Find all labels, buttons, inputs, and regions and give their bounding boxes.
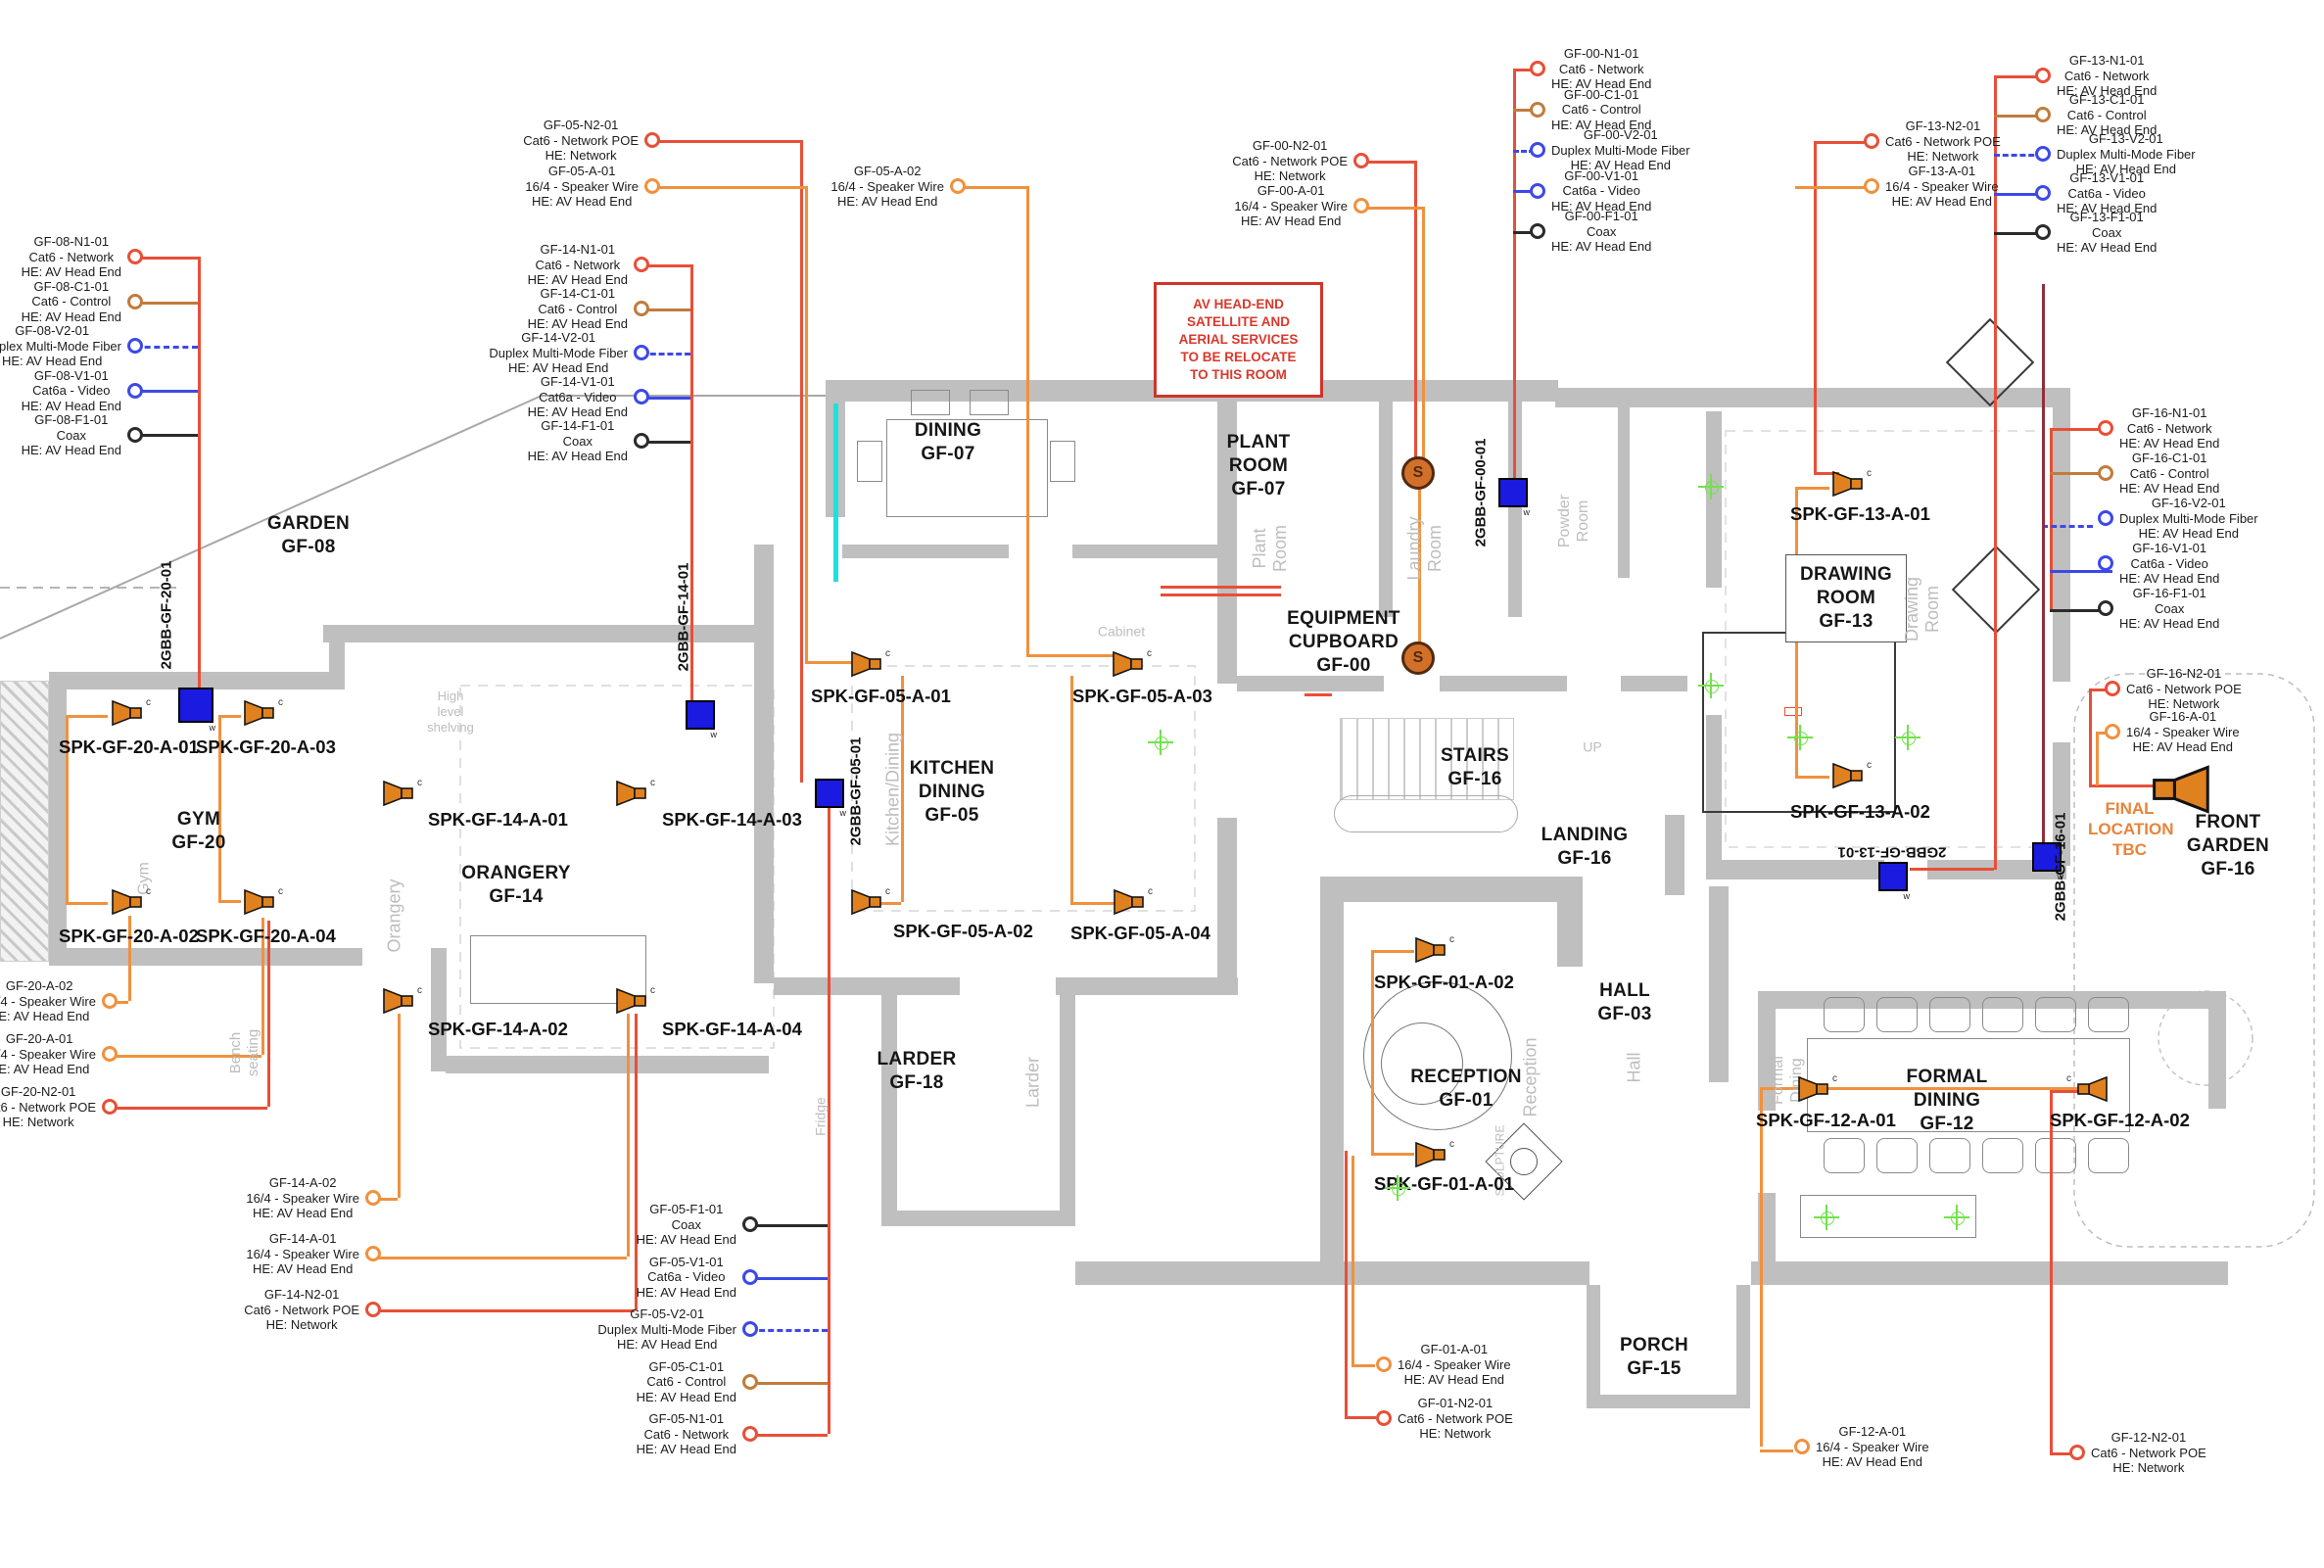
cable-run-blue: [750, 1277, 828, 1280]
cable-terminal-GF-14-A-01: [365, 1246, 381, 1261]
speaker-icon: [1112, 651, 1145, 682]
cable-label-GF-05-V2-01: GF-05-V2-01 Duplex Multi-Mode Fiber HE: …: [597, 1307, 736, 1353]
speaker-c-tag: c: [146, 697, 151, 708]
wall-segment: [1621, 676, 1687, 691]
speaker-c-tag: c: [278, 886, 283, 897]
sofa-outline: [1702, 632, 1896, 813]
cable-label-GF-00-C1-01: GF-00-C1-01 Cat6 - Control HE: AV Head E…: [1551, 87, 1651, 133]
cable-label-GF-13-F1-01: GF-13-F1-01 Coax HE: AV Head End: [2057, 210, 2157, 256]
cable-label-GF-13-N2-01: GF-13-N2-01 Cat6 - Network POE HE: Netwo…: [1885, 119, 2001, 165]
cable-run-orange: [66, 715, 108, 718]
speaker-icon: [1113, 889, 1146, 920]
speaker-c-tag: c: [650, 985, 655, 996]
speaker-c-tag: c: [278, 697, 283, 708]
wall-segment: [1587, 1395, 1750, 1408]
speaker-icon: [111, 889, 144, 920]
cable-label-GF-05-A-02: GF-05-A-02 16/4 - Speaker Wire HE: AV He…: [830, 164, 944, 210]
wall-segment: [1320, 877, 1344, 1266]
annotation-label: Larder: [1023, 1057, 1044, 1108]
cable-label-GF-08-N1-01: GF-08-N1-01 Cat6 - Network HE: AV Head E…: [22, 234, 121, 280]
ceiling-position-marker: [1385, 1175, 1410, 1201]
wall-segment: [1706, 860, 1884, 879]
cable-run-brown: [135, 302, 198, 305]
cable-run-red: [1345, 1151, 1348, 1416]
cable-terminal-GF-20-N2-01: [102, 1099, 118, 1115]
cable-label-GF-16-F1-01: GF-16-F1-01 Coax HE: AV Head End: [2119, 586, 2219, 632]
cable-terminal-GF-01-A-01: [1376, 1356, 1392, 1372]
cable-label-GF-14-V1-01: GF-14-V1-01 Cat6a - Video HE: AV Head En…: [528, 374, 628, 420]
cable-terminal-GF-08-V1-01: [127, 383, 143, 399]
annotation-label: Kitchen/Dining: [883, 733, 904, 846]
cable-run-orange: [1352, 1364, 1375, 1367]
cable-run-red: [1161, 594, 1281, 596]
room-label: STAIRS GF-16: [1441, 744, 1509, 791]
annotation-label: Fridge: [813, 1097, 830, 1136]
cable-terminal-GF-12-A-01: [1794, 1439, 1810, 1454]
annotation-label: Orangery: [385, 879, 405, 952]
speaker-c-tag: c: [1832, 1073, 1837, 1084]
cable-run-red: [1361, 161, 1414, 164]
chair-outline: [1982, 1138, 2023, 1173]
annotation-label: High level shelving: [427, 689, 474, 736]
wall-segment: [1587, 1285, 1600, 1395]
cable-label-GF-05-C1-01: GF-05-C1-01 Cat6 - Control HE: AV Head E…: [637, 1359, 736, 1405]
cable-run-orange: [1070, 676, 1073, 902]
cable-run-brown: [750, 1382, 828, 1385]
sculpture: [1510, 1148, 1538, 1175]
cable-terminal-GF-16-N1-01: [2098, 420, 2113, 436]
cable-label-GF-16-C1-01: GF-16-C1-01 Cat6 - Control HE: AV Head E…: [2119, 451, 2219, 497]
cable-terminal-GF-13-N1-01: [2035, 68, 2051, 83]
cable-label-GF-05-N2-01: GF-05-N2-01 Cat6 - Network POE HE: Netwo…: [523, 118, 639, 164]
cable-run-orange: [627, 1014, 630, 1257]
keypad-2GBB-GF-20-01: w: [178, 688, 213, 723]
speaker-label: SPK-GF-20-A-02: [59, 926, 199, 947]
wall-segment: [1320, 877, 1577, 902]
cable-label-GF-20-A-01: GF-20-A-01 16/4 - Speaker Wire HE: AV He…: [0, 1031, 96, 1077]
speaker-label: SPK-GF-05-A-03: [1072, 686, 1212, 707]
cable-label-GF-14-C1-01: GF-14-C1-01 Cat6 - Control HE: AV Head E…: [528, 286, 628, 332]
speaker-c-tag: c: [1147, 648, 1152, 659]
room-label: KITCHEN DINING GF-05: [910, 757, 995, 828]
speaker-icon: [850, 889, 883, 920]
cable-label-GF-00-V2-01: GF-00-V2-01 Duplex Multi-Mode Fiber HE: …: [1551, 127, 1690, 173]
sounder-icon: S: [1401, 456, 1435, 490]
cable-label-GF-00-N1-01: GF-00-N1-01 Cat6 - Network HE: AV Head E…: [1551, 46, 1651, 92]
cable-run-red: [2050, 1452, 2071, 1455]
wall-segment: [1736, 1285, 1750, 1395]
chair-outline: [1824, 1138, 1865, 1173]
cable-run-black: [750, 1224, 828, 1227]
cable-run-red: [652, 140, 800, 143]
wall-segment: [1706, 411, 1722, 588]
wall-segment: [1217, 380, 1237, 684]
speaker-label: SPK-GF-20-A-03: [196, 736, 336, 758]
cable-run-maroon: [2042, 284, 2045, 845]
room-label: FRONT GARDEN GF-16: [2187, 811, 2269, 881]
cable-run-orange: [1352, 1156, 1354, 1364]
keypad-label: 2GBB-GF-16-01: [2053, 813, 2069, 922]
keypad-2GBB-GF-05-01: w: [815, 779, 844, 808]
cable-run-red: [1414, 161, 1417, 458]
speaker-label: SPK-GF-20-A-04: [196, 926, 336, 947]
cable-terminal-GF-08-N1-01: [127, 249, 143, 264]
cable-run-red: [135, 257, 198, 260]
cable-terminal-GF-00-F1-01: [1530, 223, 1545, 239]
speaker-icon: [850, 651, 883, 682]
speaker-c-tag: c: [1449, 934, 1454, 945]
wall-segment: [2208, 991, 2226, 1109]
speaker-label: SPK-GF-05-A-02: [893, 921, 1033, 942]
chair-outline: [2035, 997, 2076, 1032]
chair-outline: [1929, 1138, 1970, 1173]
cable-label-GF-16-N1-01: GF-16-N1-01 Cat6 - Network HE: AV Head E…: [2119, 405, 2219, 451]
furniture-outline: [970, 390, 1009, 415]
cable-label-GF-20-N2-01: GF-20-N2-01 Cat6 - Network POE HE: Netwo…: [0, 1084, 96, 1130]
annotation-label: Cabinet: [1098, 624, 1145, 641]
wall-segment: [1751, 1261, 2228, 1285]
speaker-c-tag: c: [885, 648, 890, 659]
speaker-c-tag: c: [1148, 886, 1153, 897]
wall-segment: [1237, 676, 1384, 691]
cable-label-GF-13-A-01: GF-13-A-01 16/4 - Speaker Wire HE: AV He…: [1885, 164, 1999, 210]
cable-run-red: [2050, 428, 2053, 612]
chair-outline: [2088, 1138, 2129, 1173]
keypad-label: 2GBB-GF-05-01: [848, 737, 865, 846]
speaker-icon: [111, 700, 144, 731]
room-label: EQUIPMENT CUPBOARD GF-00: [1287, 607, 1400, 678]
cable-terminal-GF-13-V2-01: [2035, 146, 2051, 162]
cable-label-GF-16-V1-01: GF-16-V1-01 Cat6a - Video HE: AV Head En…: [2119, 541, 2219, 587]
cable-run-orange: [2096, 732, 2099, 785]
wall-segment: [323, 625, 769, 642]
cable-label-GF-16-V2-01: GF-16-V2-01 Duplex Multi-Mode Fiber HE: …: [2119, 496, 2258, 542]
furniture-outline: [857, 441, 882, 482]
chair-outline: [1929, 997, 1970, 1032]
annotation-label: Bench seating: [227, 1029, 262, 1076]
cable-terminal-GF-00-C1-01: [1530, 102, 1545, 118]
terrace-hatch: [0, 681, 49, 962]
cable-label-GF-14-N2-01: GF-14-N2-01 Cat6 - Network POE HE: Netwo…: [244, 1287, 359, 1333]
cable-run-orange: [1371, 950, 1414, 953]
keypad-label: 2GBB-GF-00-01: [1473, 439, 1490, 547]
chair-outline: [1824, 997, 1865, 1032]
cable-label-GF-00-V1-01: GF-00-V1-01 Cat6a - Video HE: AV Head En…: [1551, 168, 1651, 214]
sofa-marker: [1784, 707, 1802, 716]
window-highlight: [833, 404, 838, 582]
cable-run-orange: [1760, 1087, 1763, 1447]
speaker-c-tag: c: [417, 778, 422, 788]
cable-run-red: [1814, 141, 1817, 474]
furniture-outline: [1050, 441, 1075, 482]
cable-terminal-GF-14-N2-01: [365, 1302, 381, 1317]
annotation-label: Laundry Room: [1404, 516, 1446, 580]
wall-segment: [1075, 1261, 1589, 1285]
wall-segment: [754, 545, 774, 983]
keypad-label: 2GBB-GF-20-01: [159, 561, 175, 670]
speaker-c-tag: c: [1867, 760, 1872, 771]
cable-run-blue: [135, 390, 198, 393]
speaker-icon: [243, 889, 276, 920]
cable-terminal-GF-13-C1-01: [2035, 107, 2051, 122]
room-label: DINING GF-07: [915, 419, 981, 466]
speaker-c-tag: c: [650, 778, 655, 788]
wall-segment: [1709, 886, 1729, 1082]
room-label: LANDING GF-16: [1541, 824, 1629, 871]
cable-terminal-GF-16-A-01: [2105, 724, 2120, 739]
cable-terminal-GF-13-F1-01: [2035, 224, 2051, 240]
final-location-note: FINAL LOCATION TBC: [2088, 798, 2171, 860]
wall-segment: [2053, 388, 2070, 682]
chair-outline: [1982, 997, 2023, 1032]
speaker-icon: [243, 700, 276, 731]
cable-terminal-GF-13-V1-01: [2035, 185, 2051, 201]
wall-segment: [1665, 815, 1684, 895]
room-label: RECEPTION GF-01: [1410, 1066, 1522, 1113]
cable-run-orange: [805, 186, 808, 661]
cable-terminal-GF-05-A-02: [950, 178, 966, 194]
wall-segment: [1060, 995, 1075, 1226]
wall-segment: [1072, 545, 1234, 558]
speaker-icon: [615, 988, 648, 1019]
cable-terminal-GF-00-A-01: [1353, 198, 1369, 214]
keypad-2GBB-GF-13-01: w: [1878, 862, 1908, 891]
sounder-icon: S: [1401, 641, 1435, 675]
annotation-label: Drawing Room: [1902, 577, 1943, 641]
ceiling-position-marker: [1698, 673, 1724, 698]
chair-outline: [1876, 997, 1918, 1032]
cable-terminal-GF-14-N1-01: [634, 257, 649, 272]
speaker-c-tag: c: [1449, 1139, 1454, 1150]
wall-segment: [1618, 392, 1630, 578]
speaker-label: SPK-GF-05-A-04: [1070, 923, 1210, 944]
speaker-c-tag: c: [2066, 1073, 2071, 1084]
speaker-icon: [382, 781, 415, 811]
cable-run-orange: [1760, 1449, 1793, 1452]
annotation-label: Powder Room: [1555, 495, 1592, 547]
speaker-icon: [1831, 763, 1865, 793]
cable-terminal-GF-16-F1-01: [2098, 600, 2113, 616]
annotation-label: UP: [1583, 739, 1601, 756]
stairs-rail: [1334, 795, 1518, 832]
speaker-label: SPK-GF-12-A-01: [1756, 1110, 1896, 1131]
cable-terminal-GF-00-V2-01: [1530, 142, 1545, 158]
cable-run-red: [267, 921, 270, 1107]
wall-segment: [1557, 877, 1583, 967]
cable-label-GF-05-N1-01: GF-05-N1-01 Cat6 - Network HE: AV Head E…: [637, 1411, 736, 1457]
speaker-icon: [1414, 937, 1447, 968]
cable-terminal-GF-00-N2-01: [1353, 153, 1369, 168]
cable-label-GF-05-A-01: GF-05-A-01 16/4 - Speaker Wire HE: AV He…: [525, 164, 639, 210]
keypad-label: 2GBB-GF-14-01: [676, 563, 692, 672]
cable-label-GF-00-N2-01: GF-00-N2-01 Cat6 - Network POE HE: Netwo…: [1232, 138, 1348, 184]
cable-run-orange: [1371, 1153, 1414, 1156]
room-label: GYM GF-20: [171, 808, 225, 855]
cable-run-orange: [1795, 487, 1829, 490]
wall-segment: [881, 995, 897, 1226]
cable-label-GF-16-N2-01: GF-16-N2-01 Cat6 - Network POE HE: Netwo…: [2126, 666, 2242, 712]
wall-segment: [774, 977, 960, 995]
cable-terminal-GF-14-V2-01: [634, 345, 649, 360]
ceiling-position-marker: [1698, 474, 1724, 499]
speaker-icon: [1414, 1142, 1447, 1172]
speaker-label: SPK-GF-14-A-01: [428, 809, 568, 831]
cable-terminal-GF-05-N1-01: [742, 1426, 758, 1442]
relocation-note: AV HEAD-END SATELLITE AND AERIAL SERVICE…: [1154, 282, 1323, 398]
cable-run-red: [1304, 693, 1332, 696]
cable-label-GF-12-N2-01: GF-12-N2-01 Cat6 - Network POE HE: Netwo…: [2091, 1430, 2206, 1476]
cable-label-GF-08-F1-01: GF-08-F1-01 Coax HE: AV Head End: [22, 412, 121, 458]
wall-segment: [49, 672, 67, 966]
room-label: ORANGERY GF-14: [461, 862, 570, 909]
wall-segment: [1217, 818, 1237, 983]
cable-run-orange: [1361, 207, 1422, 210]
cable-label-GF-05-F1-01: GF-05-F1-01 Coax HE: AV Head End: [637, 1202, 736, 1248]
cable-run-red: [1345, 1416, 1376, 1419]
cable-label-GF-12-A-01: GF-12-A-01 16/4 - Speaker Wire HE: AV He…: [1816, 1424, 1929, 1470]
annotation-label: Plant Room: [1250, 525, 1291, 572]
chair-outline: [2088, 997, 2129, 1032]
speaker-icon: [615, 781, 648, 811]
cable-terminal-GF-13-A-01: [1864, 178, 1879, 194]
cable-run-black: [1513, 231, 1531, 234]
wall-segment: [431, 948, 447, 1071]
cable-terminal-GF-08-V2-01: [127, 338, 143, 354]
wall-segment: [881, 1211, 1073, 1226]
cable-run-red: [750, 1434, 828, 1437]
cable-run-blue: [135, 346, 198, 352]
speaker-icon: [2075, 1076, 2109, 1107]
wall-segment: [446, 1056, 769, 1073]
cable-terminal-GF-20-A-02: [102, 993, 118, 1009]
speaker-label: SPK-GF-05-A-01: [811, 686, 951, 707]
cable-run-orange: [1422, 207, 1425, 458]
cable-terminal-GF-14-V1-01: [634, 389, 649, 404]
ceiling-position-marker: [1787, 725, 1813, 750]
cable-run-blue: [750, 1329, 828, 1335]
speaker-label: SPK-GF-14-A-04: [662, 1019, 802, 1040]
speaker-icon: [382, 988, 415, 1019]
ceiling-position-marker: [1944, 1205, 1969, 1230]
room-label: LARDER GF-18: [877, 1048, 957, 1095]
cable-run-red: [2089, 689, 2092, 786]
cable-run-orange: [1795, 776, 1829, 779]
cable-label-GF-08-C1-01: GF-08-C1-01 Cat6 - Control HE: AV Head E…: [22, 279, 121, 325]
cable-terminal-GF-16-N2-01: [2105, 681, 2120, 696]
room-label: HALL GF-03: [1597, 979, 1651, 1026]
room-label: DRAWING ROOM GF-13: [1785, 554, 1907, 642]
cable-label-GF-16-A-01: GF-16-A-01 16/4 - Speaker Wire HE: AV He…: [2126, 709, 2240, 755]
cable-terminal-GF-00-V1-01: [1530, 183, 1545, 199]
speaker-label: SPK-GF-12-A-02: [2050, 1110, 2190, 1131]
cable-label-GF-20-A-02: GF-20-A-02 16/4 - Speaker Wire HE: AV He…: [0, 978, 96, 1024]
speaker-label: SPK-GF-13-A-02: [1790, 801, 1930, 823]
ceiling-position-marker: [1814, 1205, 1839, 1230]
cable-run-red: [198, 257, 201, 697]
cable-terminal-GF-05-V2-01: [742, 1321, 758, 1337]
cable-terminal-GF-08-F1-01: [127, 427, 143, 443]
cable-terminal-GF-08-C1-01: [127, 294, 143, 309]
cable-label-GF-01-A-01: GF-01-A-01 16/4 - Speaker Wire HE: AV He…: [1398, 1342, 1511, 1388]
speaker-label: SPK-GF-13-A-01: [1790, 503, 1930, 525]
keypad-2GBB-GF-14-01: w: [686, 700, 715, 730]
speaker-icon: [1831, 471, 1865, 501]
cable-run-orange: [1070, 902, 1116, 905]
wall-segment: [49, 948, 362, 966]
cable-run-orange: [373, 1257, 627, 1259]
chair-outline: [2035, 1138, 2076, 1173]
cable-label-GF-00-A-01: GF-00-A-01 16/4 - Speaker Wire HE: AV He…: [1234, 183, 1348, 229]
cable-run-orange: [218, 900, 241, 903]
cable-run-red: [110, 1107, 267, 1110]
speaker-label: SPK-GF-14-A-02: [428, 1019, 568, 1040]
cable-terminal-GF-12-N2-01: [2069, 1445, 2085, 1460]
cable-terminal-GF-05-V1-01: [742, 1269, 758, 1285]
annotation-label: Hall: [1625, 1052, 1645, 1082]
ceiling-position-marker: [1895, 725, 1921, 750]
cable-label-GF-01-N2-01: GF-01-N2-01 Cat6 - Network POE HE: Netwo…: [1398, 1396, 1513, 1442]
cable-run-orange: [1026, 654, 1116, 657]
cable-terminal-GF-05-N2-01: [644, 132, 660, 148]
room-label: FORMAL DINING GF-12: [1906, 1066, 1987, 1136]
cable-terminal-GF-01-N2-01: [1376, 1410, 1392, 1426]
cable-run-orange: [652, 186, 805, 189]
annotation-label: Reception: [1521, 1037, 1541, 1117]
cable-run-black: [135, 434, 198, 437]
cable-run-orange: [1026, 186, 1029, 654]
cable-terminal-GF-05-A-01: [644, 178, 660, 194]
keypad-label: 2GBB-GF-13-01: [1838, 844, 1947, 861]
cable-run-red: [1513, 69, 1516, 480]
speaker-c-tag: c: [1867, 468, 1872, 479]
cable-run-red: [1161, 586, 1281, 589]
speaker-c-tag: c: [417, 985, 422, 996]
wall-segment: [1440, 676, 1567, 691]
speaker-c-tag: c: [146, 886, 151, 897]
cable-terminal-GF-20-A-01: [102, 1046, 118, 1062]
cable-terminal-GF-05-F1-01: [742, 1216, 758, 1232]
room-label: PLANT ROOM GF-07: [1227, 431, 1291, 501]
cable-label-GF-05-V1-01: GF-05-V1-01 Cat6a - Video HE: AV Head En…: [637, 1255, 736, 1301]
cable-terminal-GF-14-C1-01: [634, 301, 649, 316]
furniture-outline: [911, 390, 950, 415]
cable-terminal-GF-05-C1-01: [742, 1374, 758, 1390]
speaker-label: SPK-GF-01-A-02: [1374, 972, 1514, 993]
cable-terminal-GF-14-A-02: [365, 1190, 381, 1206]
chair-outline: [1876, 1138, 1918, 1173]
speaker-label: SPK-GF-20-A-01: [59, 736, 199, 758]
cable-run-red: [373, 1309, 635, 1312]
wall-segment: [1379, 392, 1393, 617]
keypad-2GBB-GF-00-01: w: [1498, 478, 1528, 507]
cable-label-GF-14-N1-01: GF-14-N1-01 Cat6 - Network HE: AV Head E…: [528, 242, 628, 288]
speaker-label: SPK-GF-14-A-03: [662, 809, 802, 831]
cable-run-orange: [1795, 186, 1872, 189]
cable-terminal-GF-16-V1-01: [2098, 555, 2113, 571]
cable-run-red: [800, 140, 803, 783]
cable-run-orange: [398, 1014, 401, 1198]
cable-run-orange: [958, 186, 1026, 189]
speaker-c-tag: c: [885, 886, 890, 897]
cable-label-GF-14-A-02: GF-14-A-02 16/4 - Speaker Wire HE: AV He…: [246, 1175, 359, 1221]
cable-terminal-GF-00-N1-01: [1530, 61, 1545, 76]
speaker-icon: [1797, 1076, 1830, 1107]
cable-label-GF-08-V2-01: GF-08-V2-01 Duplex Multi-Mode Fiber HE: …: [0, 323, 121, 369]
cable-terminal-GF-14-F1-01: [634, 433, 649, 449]
cable-label-GF-14-A-01: GF-14-A-01 16/4 - Speaker Wire HE: AV He…: [246, 1231, 359, 1277]
cable-run-orange: [66, 902, 108, 905]
cable-run-orange: [218, 715, 241, 718]
